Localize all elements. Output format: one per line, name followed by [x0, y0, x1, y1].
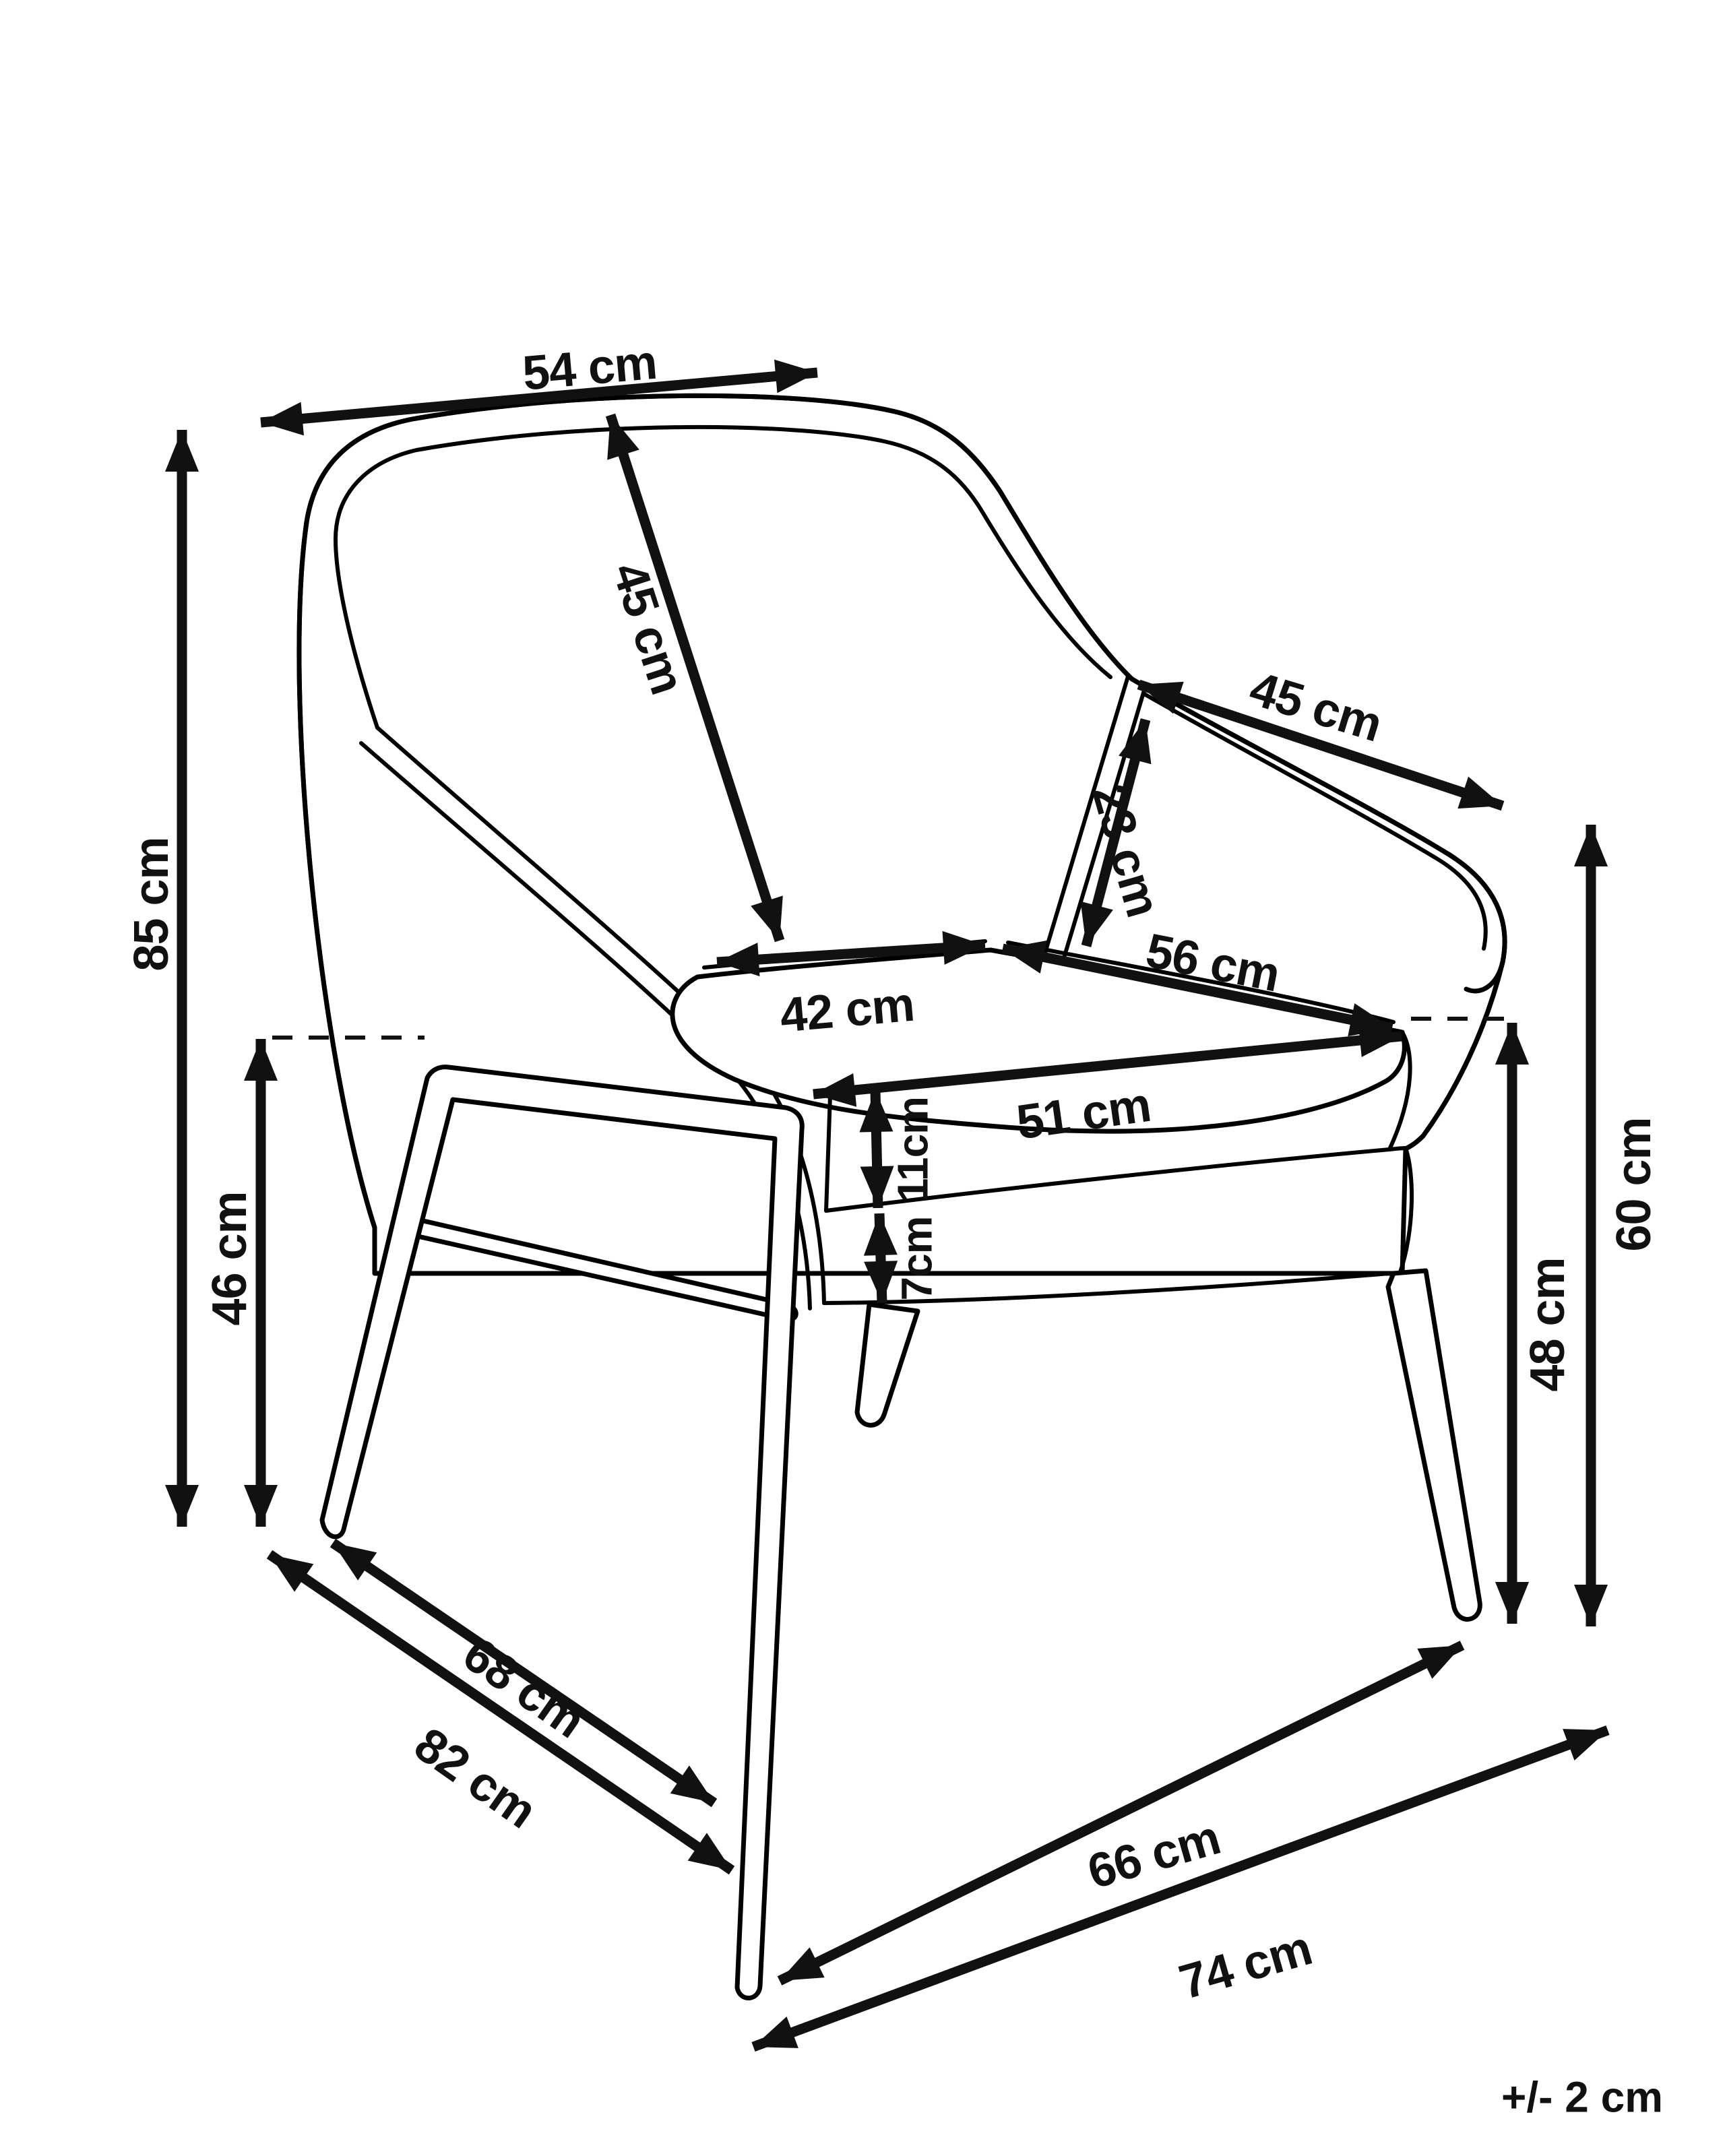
- dim-seat-height-label: 46 cm: [203, 1191, 257, 1325]
- dim-floor-depth-inner: 68 cm: [333, 1543, 714, 1803]
- dim-floor-width-outer: 74 cm: [753, 1730, 1608, 2047]
- rear-right-leg: [1388, 1271, 1480, 1619]
- dim-cushion-thickness-arrow: [875, 1090, 878, 1208]
- dim-floor-width-outer-label: 74 cm: [1174, 1921, 1317, 2010]
- front-right-leg: [857, 1304, 918, 1425]
- dim-overall-height-label: 85 cm: [125, 837, 179, 971]
- dim-right-height-inner-label: 48 cm: [1521, 1257, 1575, 1391]
- dim-right-height-outer: 60 cm: [1591, 825, 1661, 1626]
- dim-floor-width-outer-arrow: [753, 1730, 1608, 2047]
- dim-floor-depth-outer-label: 82 cm: [405, 1717, 546, 1839]
- dim-floor-width-inner-arrow: [780, 1645, 1462, 1981]
- dim-right-height-outer-label: 60 cm: [1607, 1117, 1661, 1251]
- dim-overall-height: 85 cm: [125, 430, 182, 1527]
- dim-base-thickness-arrow: [879, 1213, 882, 1303]
- tolerance-note: +/- 2 cm: [1501, 2072, 1663, 2121]
- dim-floor-width-inner: 66 cm: [780, 1645, 1462, 1981]
- dim-floor-depth-outer: 82 cm: [270, 1554, 732, 1870]
- dimension-diagram: 54 cm 45 cm 45 cm 23 cm 85 cm 46 cm: [0, 0, 1725, 2156]
- dim-base-thickness-label: 7cm: [892, 1216, 941, 1300]
- dim-cushion-thickness-label: 11cm: [888, 1097, 937, 1202]
